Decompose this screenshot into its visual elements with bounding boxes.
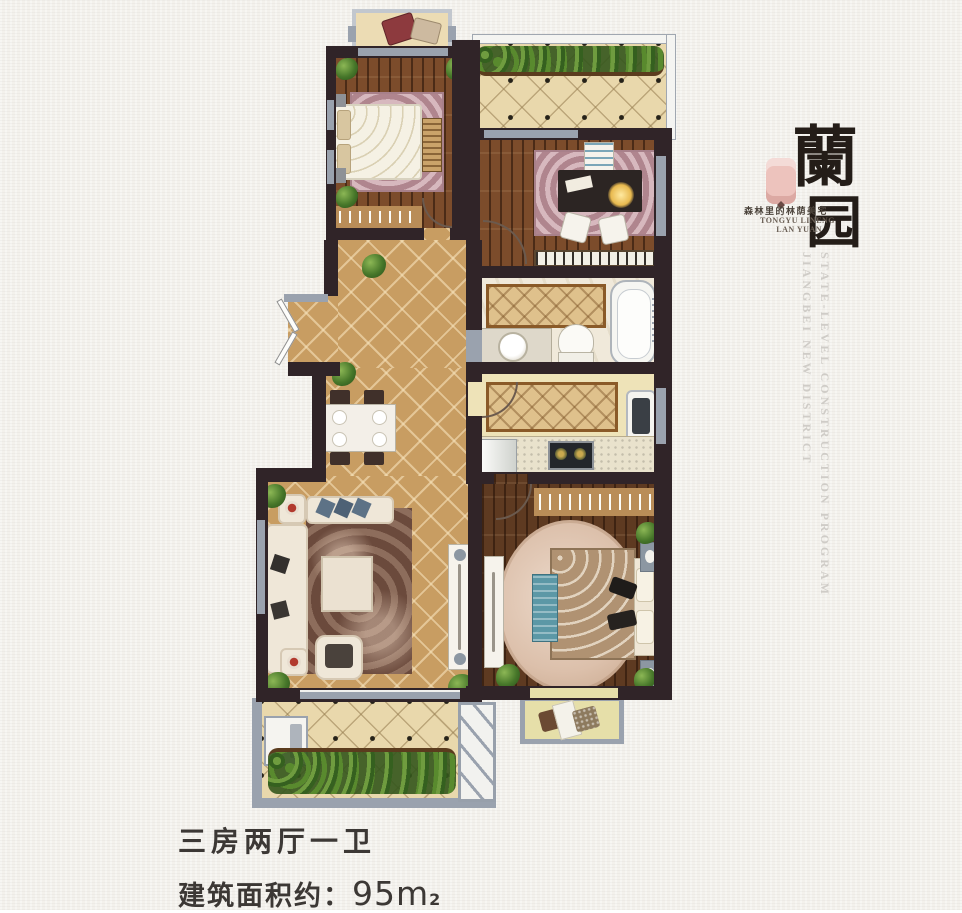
living-tv-cabinet-handle <box>458 564 461 650</box>
stove-burner-2 <box>574 448 586 460</box>
side-caption-program: STATE-LEVEL CONSTRUCTION PROGRAM <box>817 252 832 597</box>
window-bedroom2-1 <box>327 100 334 130</box>
study-chair-2 <box>597 213 629 245</box>
wall-bath-kitchen <box>470 362 672 374</box>
living-tv-cabinet-knob-1 <box>454 549 466 561</box>
living-side-table-1-plate <box>285 501 299 515</box>
layout-caption: 三房两厅一卫 <box>178 820 442 860</box>
terrace-railing-top <box>472 34 674 44</box>
dining-chair-4 <box>364 452 384 465</box>
wall-dining-left <box>312 362 326 474</box>
master-bench <box>532 574 558 642</box>
bottom-balcony-frame-left <box>252 698 262 804</box>
terrace-railing-right <box>666 34 676 140</box>
door-gap-master <box>494 474 528 484</box>
poster: 蘭 园 森林里的林荫美宅 TONGYU LINENG LAN YUAN JIAN… <box>0 0 962 910</box>
study-lamp <box>608 182 634 208</box>
logo-tagline-en-1: TONGYU LINENG <box>760 216 835 225</box>
bathroom-rug <box>486 284 606 328</box>
door-bathroom <box>466 330 482 362</box>
dining-chair-3 <box>330 452 350 465</box>
wall-bedroom2-left <box>326 46 336 240</box>
logo-character-top: 蘭 <box>792 126 858 192</box>
dining-table <box>322 404 396 452</box>
wall-entry-upper <box>324 240 338 296</box>
dining-plate-1 <box>332 410 347 425</box>
kitchen-sink-bowl <box>632 398 650 434</box>
window-terrace-door <box>484 130 578 138</box>
master-pillow-1 <box>636 568 654 602</box>
door-gap-bedroom2 <box>424 228 450 240</box>
wall-master-left <box>468 484 482 700</box>
master-tv-cabinet-handle <box>492 572 495 652</box>
door-gap-kitchen <box>468 382 482 416</box>
bottom-balcony-plants <box>268 748 456 794</box>
bay-window-gap <box>530 688 618 698</box>
window-kitchen-right <box>656 388 666 444</box>
bedroom2-bench <box>422 118 442 172</box>
wall-study-bottom <box>470 266 672 278</box>
dining-plate-2 <box>372 410 387 425</box>
window-bedroom2-2 <box>327 150 334 184</box>
entry-threshold <box>284 294 328 302</box>
master-wardrobe <box>534 488 658 516</box>
living-armchair-seat <box>325 644 353 668</box>
living-side-table-2-plate <box>287 655 301 669</box>
window-balcony-door <box>358 48 448 56</box>
bathtub-inner <box>617 289 651 359</box>
master-bed <box>550 548 636 660</box>
master-pillow-2 <box>636 610 654 644</box>
living-coffee-table <box>321 556 373 612</box>
wall-bedroom2-terrace <box>452 40 480 240</box>
logo-tagline-en-2: LAN YUAN <box>760 225 822 234</box>
bedroom2-wardrobe <box>336 206 422 228</box>
study-piano <box>534 250 656 267</box>
living-tv-cabinet-knob-2 <box>454 653 466 665</box>
bedroom2-pillow-1 <box>337 110 351 140</box>
kitchen-fridge <box>479 439 517 474</box>
stove-burner-1 <box>555 448 567 460</box>
area-caption: 建筑面积约：95m2 <box>178 874 442 913</box>
area-label: 建筑面积约： <box>178 874 352 913</box>
area-superscript: 2 <box>429 890 442 909</box>
side-caption-district: JIANGBEI NEW DISTRICT <box>799 252 814 466</box>
window-balcony-slider <box>300 690 460 699</box>
window-study-right <box>656 156 666 236</box>
window-living-left <box>257 520 265 614</box>
dining-plate-4 <box>372 432 387 447</box>
top-balcony-post-left <box>348 26 356 42</box>
bathroom-basin <box>498 332 528 362</box>
caption-block: 三房两厅一卫 建筑面积约：95m2 <box>178 820 442 913</box>
area-value: 95m <box>352 874 429 913</box>
terrace-plants <box>476 46 664 76</box>
dining-plate-3 <box>332 432 347 447</box>
drying-rack <box>458 702 496 802</box>
